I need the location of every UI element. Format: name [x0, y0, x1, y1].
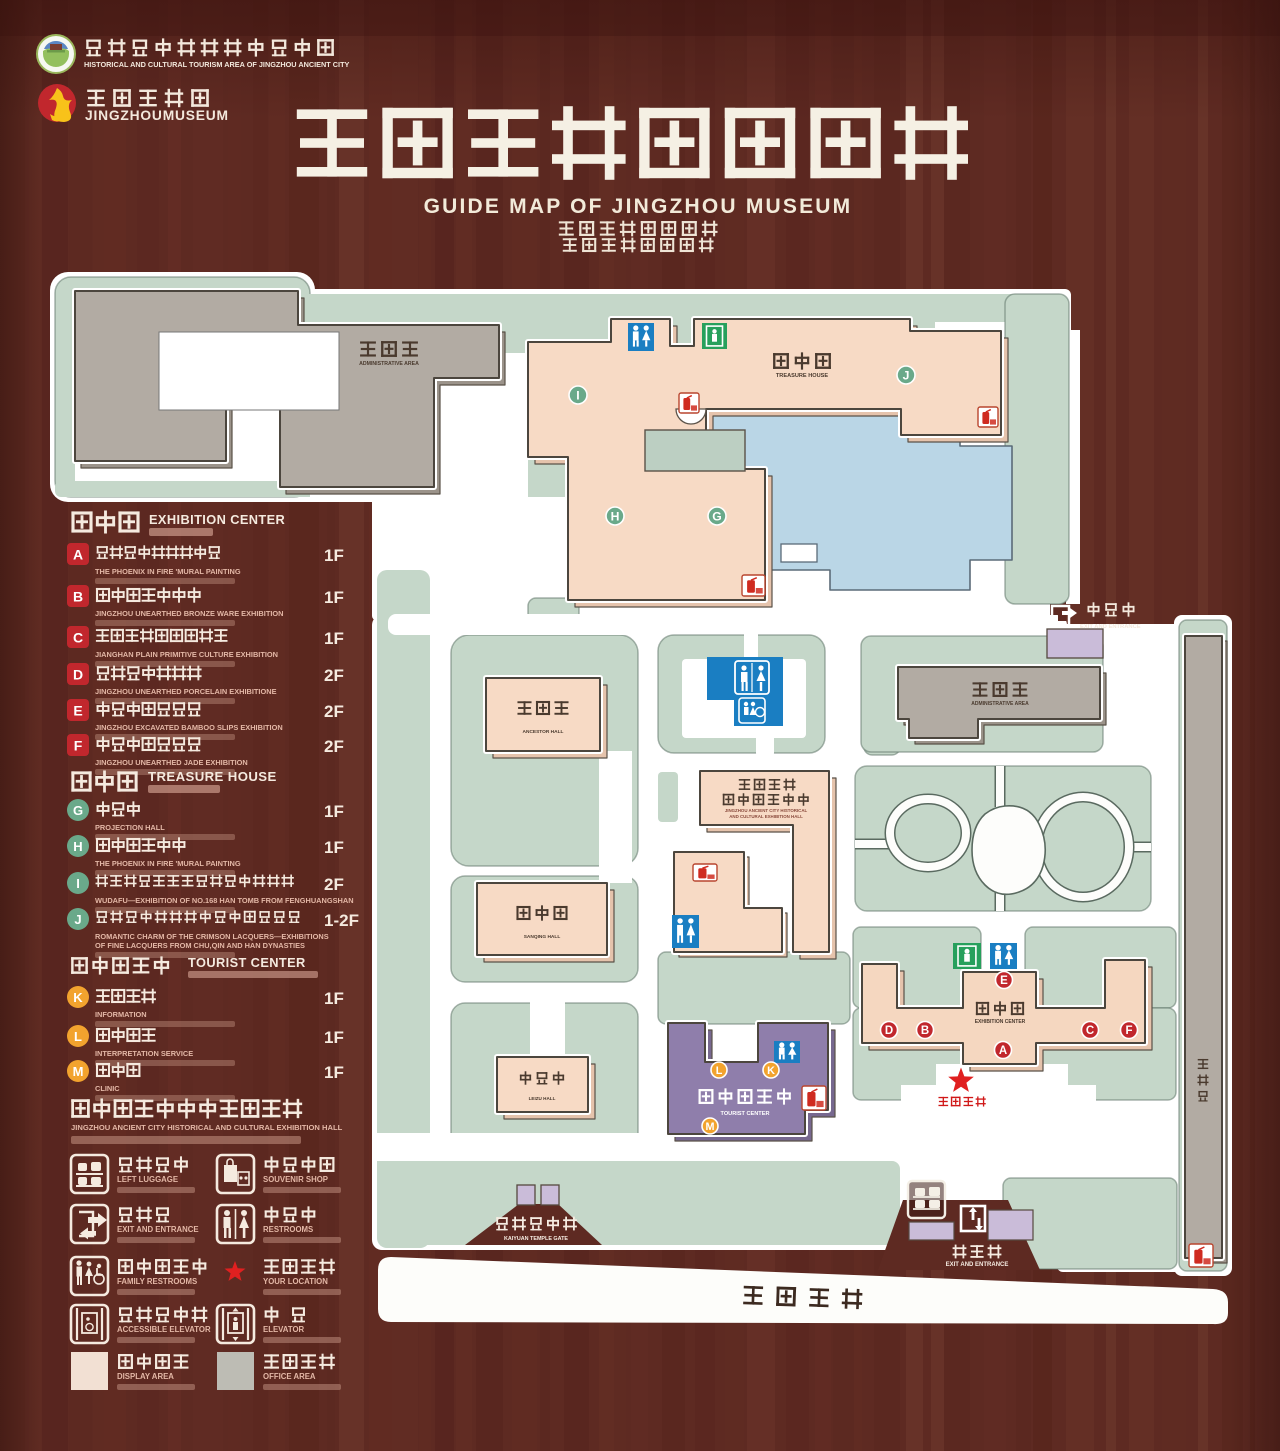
- svg-text:K: K: [73, 990, 83, 1005]
- svg-text:I: I: [576, 388, 579, 402]
- svg-text:2F: 2F: [324, 666, 344, 685]
- svg-text:SANQING HALL: SANQING HALL: [524, 934, 561, 940]
- svg-text:D: D: [73, 667, 83, 683]
- svg-text:LEIZU HALL: LEIZU HALL: [529, 1096, 556, 1101]
- svg-text:JINGZHOU UNEARTHED JADE EXHIBI: JINGZHOU UNEARTHED JADE EXHIBITION: [95, 758, 248, 767]
- svg-text:1F: 1F: [324, 588, 344, 607]
- svg-text:ROMANTIC CHARM OF THE CRIMSON: ROMANTIC CHARM OF THE CRIMSON LACQUERS—E…: [95, 932, 329, 941]
- svg-text:1-2F: 1-2F: [324, 911, 359, 930]
- svg-text:EXIT AND ENTRANCE: EXIT AND ENTRANCE: [117, 1225, 199, 1234]
- svg-text:JINGZHOU ANCIENT CITY HISTORIC: JINGZHOU ANCIENT CITY HISTORICAL AND CUL…: [71, 1123, 343, 1132]
- svg-text:FAMILY RESTROOMS: FAMILY RESTROOMS: [117, 1277, 197, 1286]
- svg-text:1F: 1F: [324, 1063, 344, 1082]
- svg-text:2F: 2F: [324, 702, 344, 721]
- svg-text:WUDAFU—EXHIBITION OF NO.168 HA: WUDAFU—EXHIBITION OF NO.168 HAN TOMB FRO…: [95, 896, 354, 905]
- svg-text:JINGZHOU UNEARTHED BRONZE WARE: JINGZHOU UNEARTHED BRONZE WARE EXHIBITIO…: [95, 609, 283, 618]
- svg-text:I: I: [76, 876, 80, 891]
- svg-text:CLINIC: CLINIC: [95, 1084, 120, 1093]
- svg-text:M: M: [73, 1064, 84, 1079]
- svg-text:G: G: [712, 509, 721, 523]
- svg-text:INTERPRETATION SERVICE: INTERPRETATION SERVICE: [95, 1049, 193, 1058]
- svg-text:L: L: [716, 1065, 723, 1077]
- svg-text:ADMINISTRATIVE AREA: ADMINISTRATIVE AREA: [359, 361, 419, 367]
- svg-text:1F: 1F: [324, 989, 344, 1008]
- svg-text:H: H: [73, 839, 82, 854]
- svg-text:TOURIST CENTER: TOURIST CENTER: [721, 1111, 770, 1117]
- svg-text:ANCESTOR HALL: ANCESTOR HALL: [523, 729, 564, 735]
- svg-text:GUIDE MAP OF JINGZHOU MUSEUM: GUIDE MAP OF JINGZHOU MUSEUM: [424, 195, 853, 218]
- svg-text:1F: 1F: [324, 546, 344, 565]
- svg-text:A: A: [999, 1045, 1007, 1057]
- svg-text:JINGZHOU ANCIENT CITY HISTORIC: JINGZHOU ANCIENT CITY HISTORICAL: [725, 808, 808, 813]
- svg-text:K: K: [767, 1065, 775, 1077]
- svg-text:PROJECTION HALL: PROJECTION HALL: [95, 823, 165, 832]
- svg-text:TREASURE HOUSE: TREASURE HOUSE: [148, 769, 277, 784]
- svg-text:RESTROOMS: RESTROOMS: [263, 1225, 313, 1234]
- svg-text:EXIT AND ENTRANCE: EXIT AND ENTRANCE: [946, 1262, 1009, 1268]
- svg-text:AND CULTURAL EXHIBITION HALL: AND CULTURAL EXHIBITION HALL: [729, 814, 803, 819]
- svg-text:EXHIBITION CENTER: EXHIBITION CENTER: [975, 1019, 1026, 1025]
- svg-text:1F: 1F: [324, 802, 344, 821]
- svg-text:KAIYUAN TEMPLE GATE: KAIYUAN TEMPLE GATE: [504, 1236, 568, 1242]
- svg-text:ELEVATOR: ELEVATOR: [263, 1325, 305, 1334]
- svg-text:B: B: [73, 589, 83, 605]
- svg-text:JINGZHOUMUSEUM: JINGZHOUMUSEUM: [85, 108, 229, 123]
- svg-text:L: L: [74, 1029, 82, 1044]
- svg-text:HISTORICAL AND CULTURAL TOURIS: HISTORICAL AND CULTURAL TOURISM AREA OF …: [84, 60, 350, 69]
- svg-text:F: F: [1125, 1025, 1132, 1037]
- svg-text:C: C: [73, 630, 83, 646]
- svg-text:B: B: [921, 1025, 929, 1037]
- svg-text:2F: 2F: [324, 875, 344, 894]
- svg-text:F: F: [74, 738, 83, 754]
- svg-text:LEFT LUGGAGE: LEFT LUGGAGE: [117, 1175, 178, 1184]
- svg-text:C: C: [1086, 1025, 1094, 1037]
- svg-text:E: E: [73, 703, 82, 719]
- svg-text:OFFICE AREA: OFFICE AREA: [263, 1372, 316, 1381]
- svg-text:DISPLAY AREA: DISPLAY AREA: [117, 1372, 174, 1381]
- svg-text:2F: 2F: [324, 737, 344, 756]
- svg-text:THE PHOENIX IN FIRE 'MURAL PAI: THE PHOENIX IN FIRE 'MURAL PAINTING: [95, 567, 241, 576]
- svg-text:D: D: [885, 1025, 893, 1037]
- svg-text:INFORMATION: INFORMATION: [95, 1010, 147, 1019]
- svg-text:1F: 1F: [324, 629, 344, 648]
- svg-text:H: H: [611, 509, 620, 523]
- svg-text:TOURIST CENTER: TOURIST CENTER: [188, 955, 306, 970]
- svg-text:TREASURE HOUSE: TREASURE HOUSE: [776, 373, 828, 379]
- svg-text:A: A: [73, 547, 83, 563]
- svg-text:J: J: [74, 912, 81, 927]
- svg-text:E: E: [1000, 975, 1008, 987]
- svg-text:ACCESSIBLE ELEVATOR: ACCESSIBLE ELEVATOR: [117, 1325, 211, 1334]
- svg-text:G: G: [73, 803, 83, 818]
- svg-text:OF FINE LACQUERS FROM CHU,QIN: OF FINE LACQUERS FROM CHU,QIN AND HAN DY…: [95, 941, 305, 950]
- svg-text:EXHIBITION CENTER: EXHIBITION CENTER: [149, 512, 285, 527]
- svg-text:JINGZHOU EXCAVATED BAMBOO SLIP: JINGZHOU EXCAVATED BAMBOO SLIPS EXHIBITI…: [95, 723, 283, 732]
- svg-text:1F: 1F: [324, 838, 344, 857]
- svg-text:M: M: [706, 1121, 715, 1133]
- svg-text:SOUVENIR SHOP: SOUVENIR SHOP: [263, 1175, 328, 1184]
- svg-text:YOUR LOCATION: YOUR LOCATION: [263, 1277, 328, 1286]
- svg-text:JINGZHOU UNEARTHED PORCELAIN E: JINGZHOU UNEARTHED PORCELAIN EXHIBITIONE: [95, 687, 277, 696]
- svg-text:THE PHOENIX IN FIRE 'MURAL PAI: THE PHOENIX IN FIRE 'MURAL PAINTING: [95, 859, 241, 868]
- svg-text:ADMINISTRATIVE AREA: ADMINISTRATIVE AREA: [971, 701, 1029, 707]
- svg-text:1F: 1F: [324, 1028, 344, 1047]
- svg-text:JIANGHAN PLAIN PRIMITIVE CULTU: JIANGHAN PLAIN PRIMITIVE CULTURE EXHIBIT…: [95, 650, 278, 659]
- svg-text:J: J: [903, 368, 910, 382]
